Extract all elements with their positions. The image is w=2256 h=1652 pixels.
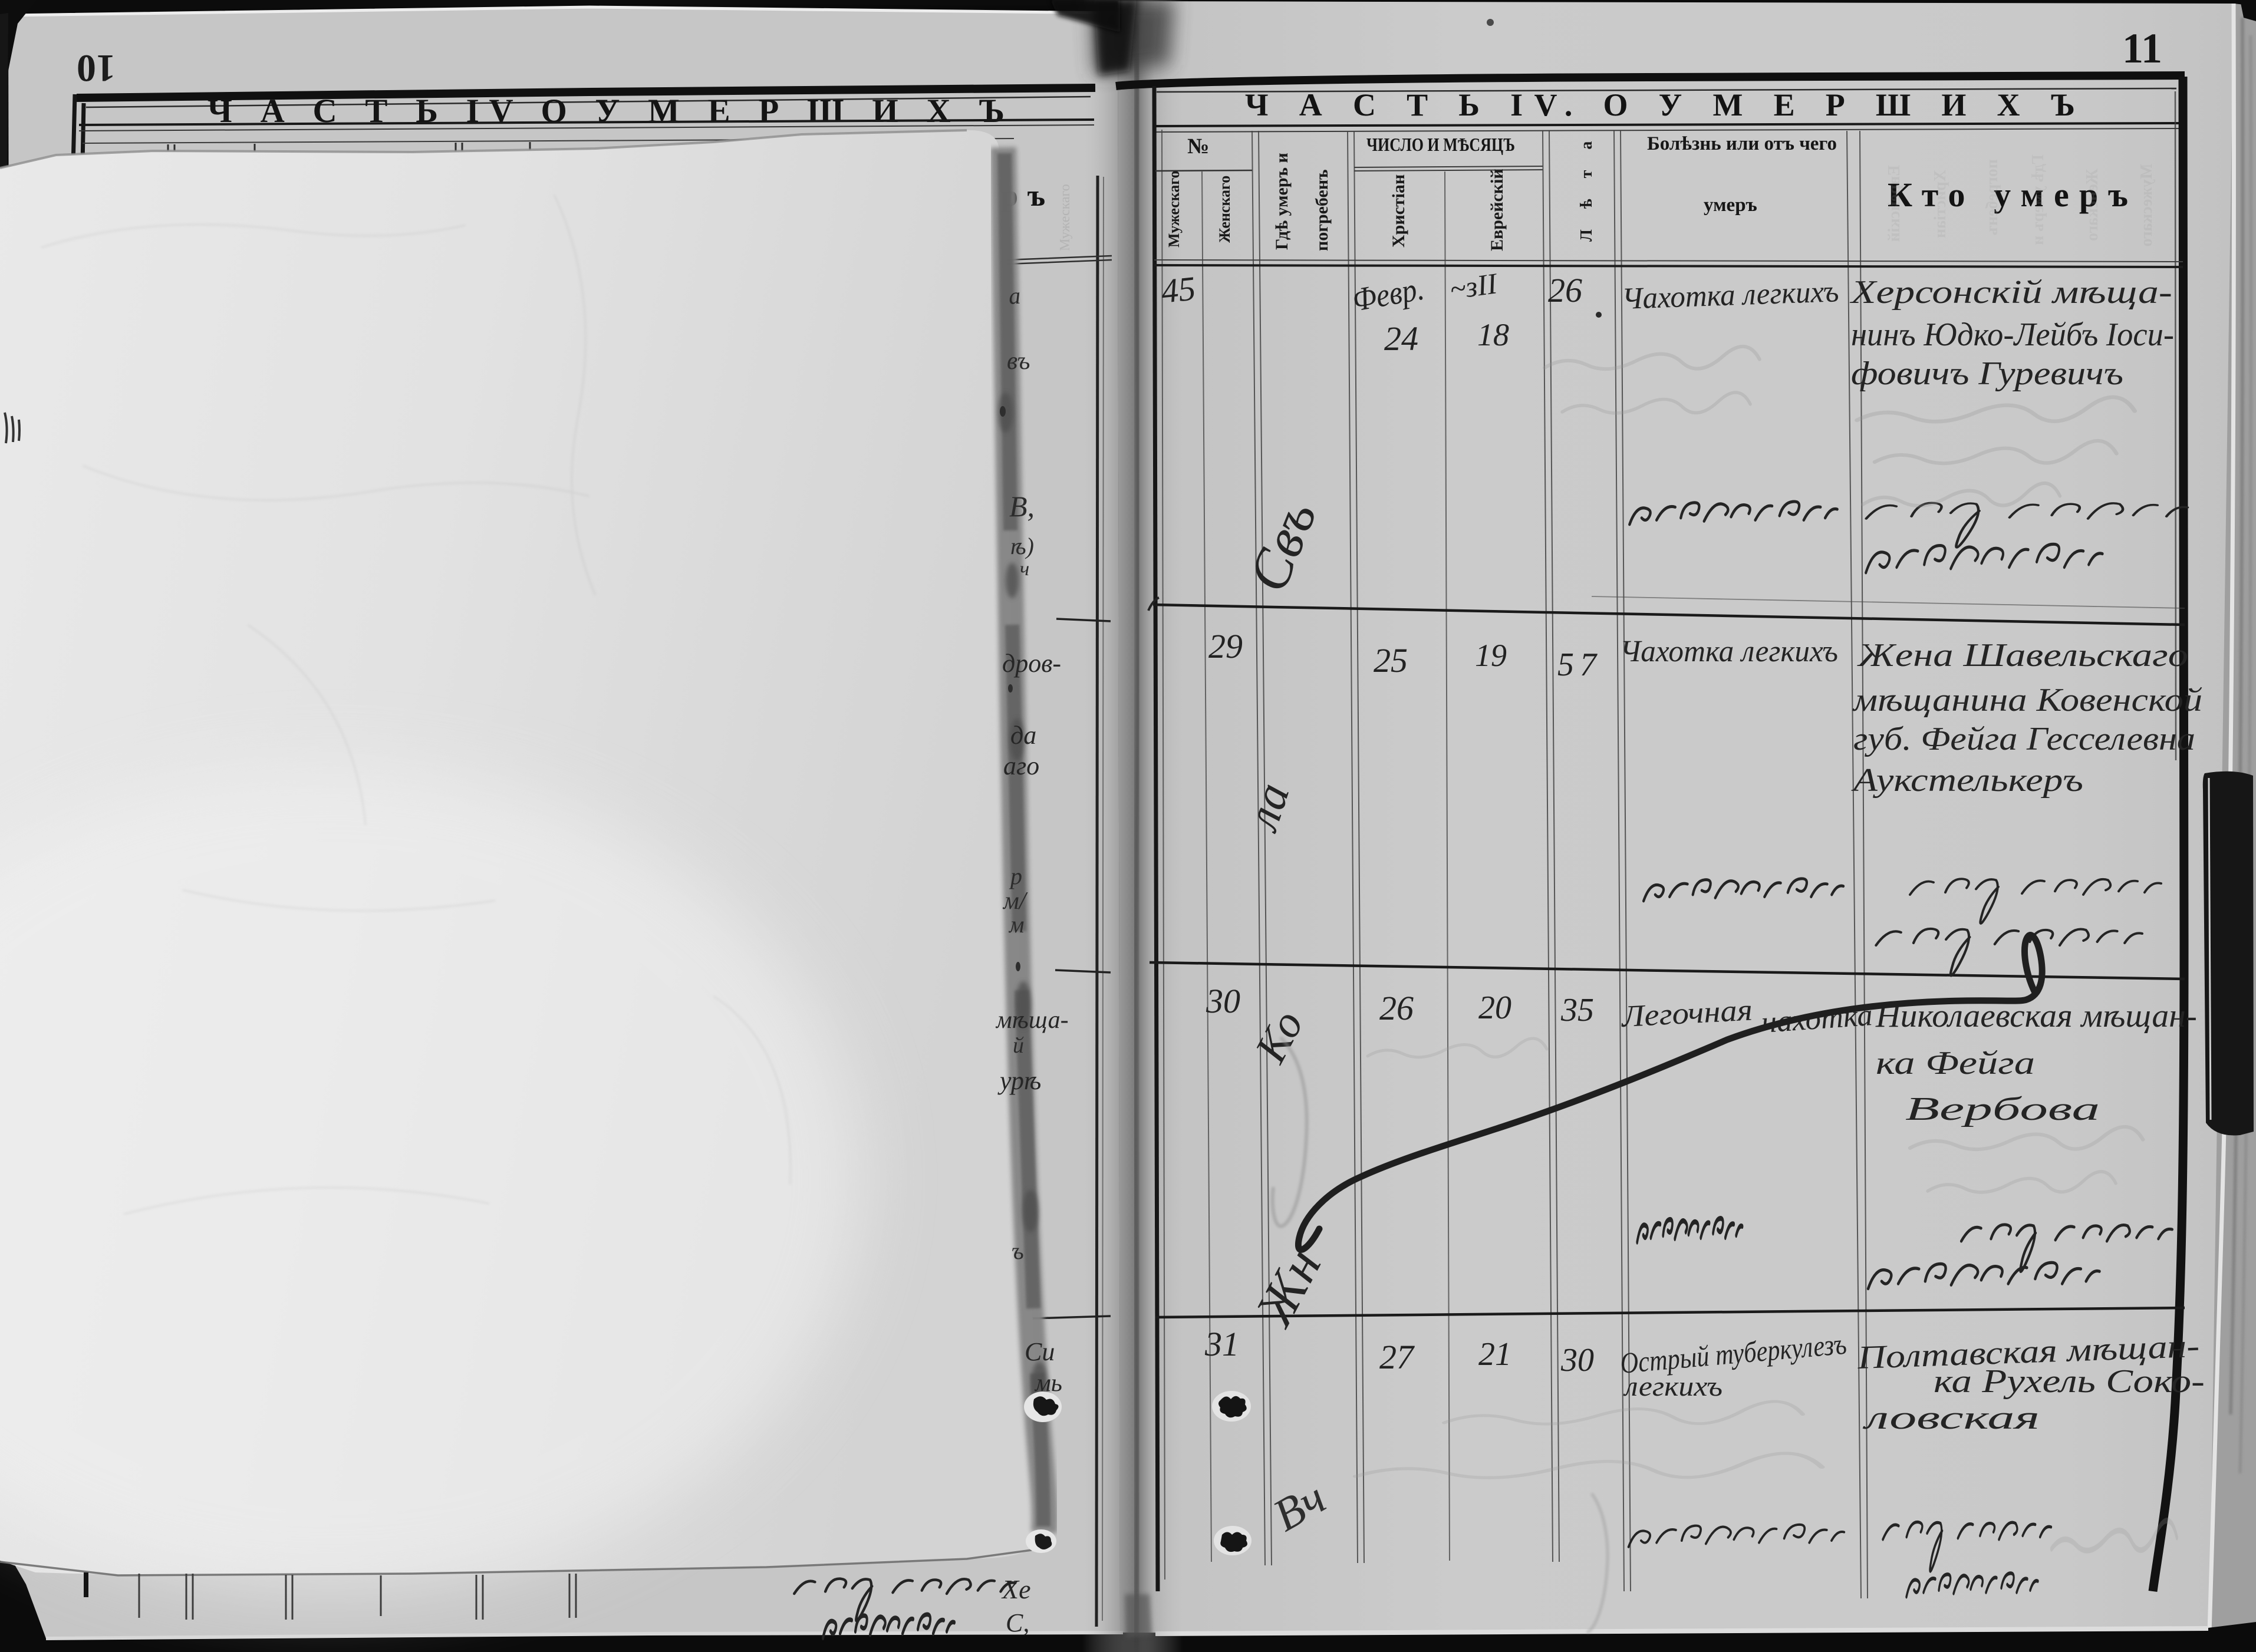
svg-text:легкихъ: легкихъ [1623, 1371, 1723, 1402]
svg-text:26: 26 [1379, 989, 1414, 1027]
svg-text:ъ: ъ [1012, 1238, 1024, 1264]
svg-text:Легочная: Легочная [1619, 993, 1753, 1034]
svg-text:Христіан: Христіан [1931, 170, 1949, 238]
svg-text:35: 35 [1560, 992, 1594, 1028]
svg-text:19: 19 [1475, 638, 1507, 673]
svg-text:ка Фейга: ка Фейга [1876, 1045, 2035, 1081]
svg-text:26: 26 [1548, 271, 1582, 309]
svg-text:Женскаго: Женскаго [2083, 169, 2102, 241]
svg-text:27: 27 [1379, 1338, 1415, 1376]
svg-text:№: № [1187, 134, 1209, 159]
svg-text:~зІІ: ~зІІ [1448, 266, 1500, 306]
svg-text:С,: С, [1006, 1608, 1029, 1637]
svg-text:погребенъ: погребенъ [1312, 169, 1332, 251]
svg-text:57: 57 [1557, 647, 1602, 683]
svg-text:Гдѣ умеръ и: Гдѣ умеръ и [2029, 154, 2047, 245]
svg-text:Мужескаго: Мужескаго [2138, 164, 2156, 247]
svg-text:Херсонскій мѣща-: Херсонскій мѣща- [1850, 274, 2172, 311]
svg-text:мѣщанина Ковенской: мѣщанина Ковенской [1852, 682, 2202, 718]
svg-text:ловская: ловская [1862, 1400, 2040, 1436]
svg-text:Мужескаго: Мужескаго [1058, 184, 1073, 251]
svg-text:й: й [1013, 1033, 1024, 1058]
svg-text:30: 30 [1560, 1342, 1594, 1379]
svg-text:31: 31 [1204, 1325, 1239, 1363]
svg-text:10: 10 [77, 47, 116, 90]
svg-text:Еврейскій: Еврейскій [1487, 169, 1507, 251]
svg-text:29: 29 [1208, 627, 1243, 665]
svg-text:Л ѣ т а: Л ѣ т а [1577, 133, 1596, 242]
svg-text:дров-: дров- [1002, 649, 1061, 678]
svg-text:Жена Шавельскаго: Жена Шавельскаго [1857, 637, 2188, 674]
svg-text:ка Рухель Соко-: ка Рухель Соко- [1934, 1363, 2205, 1400]
svg-text:11: 11 [2122, 25, 2162, 72]
svg-text:урѣ: урѣ [997, 1066, 1041, 1095]
svg-text:Аукстелькеръ: Аукстелькеръ [1850, 762, 2083, 799]
svg-text:въ: въ [1007, 348, 1030, 375]
svg-text:м: м [1008, 911, 1025, 938]
svg-text:фовичъ Гуревичъ: фовичъ Гуревичъ [1851, 355, 2123, 392]
svg-text:20: 20 [1478, 990, 1511, 1026]
svg-text:аго: аго [1003, 751, 1039, 780]
svg-text:ЧИСЛО И МѢСЯЦЪ: ЧИСЛО И МѢСЯЦЪ [1366, 134, 1515, 155]
svg-text:В,: В, [1009, 490, 1035, 523]
svg-text:18: 18 [1477, 317, 1509, 352]
svg-text:Еврейскій: Еврейскій [1885, 165, 1903, 242]
svg-text:да: да [1010, 721, 1036, 750]
svg-text:Женскаго: Женскаго [1216, 176, 1233, 243]
svg-text:45: 45 [1160, 269, 1197, 311]
svg-text:30: 30 [1206, 982, 1240, 1020]
svg-text:ѣ): ѣ) [1010, 533, 1034, 559]
svg-text:ч: ч [1020, 558, 1029, 580]
svg-text:21: 21 [1478, 1336, 1511, 1373]
svg-text:Ч А С Т Ь IV. О У М Е Р: Ч А С Т Ь IV. О У М Е Р Ш И Х Ъ [1245, 87, 2075, 123]
svg-text:Чахотка легкихъ: Чахотка легкихъ [1620, 635, 1838, 668]
svg-text:24: 24 [1384, 319, 1418, 358]
svg-text:Мужескаго: Мужескаго [1165, 170, 1183, 248]
svg-text:нинъ Юдко-Лейбъ Іоси-: нинъ Юдко-Лейбъ Іоси- [1851, 316, 2174, 353]
svg-text:губ. Фейга Гесселевна: губ. Фейга Гесселевна [1853, 721, 2195, 757]
svg-text:Си: Си [1025, 1337, 1055, 1366]
svg-text:погребенъ: погребенъ [1983, 159, 2001, 235]
svg-text:Гдѣ умеръ и: Гдѣ умеръ и [1272, 153, 1292, 250]
svg-text:а: а [1007, 282, 1021, 309]
svg-text:мѣща-: мѣща- [995, 1007, 1069, 1034]
svg-text:Христіан: Христіан [1389, 174, 1408, 248]
svg-text:Болѣзнь или отъ чего: Болѣзнь или отъ чего [1647, 133, 1837, 154]
svg-text:р: р [1009, 863, 1022, 889]
svg-text:Вербова: Вербова [1905, 1091, 2100, 1127]
svg-text:Хе: Хе [1001, 1574, 1031, 1604]
svg-text:умеръ: умеръ [1704, 194, 1757, 216]
svg-text:25: 25 [1374, 641, 1408, 680]
